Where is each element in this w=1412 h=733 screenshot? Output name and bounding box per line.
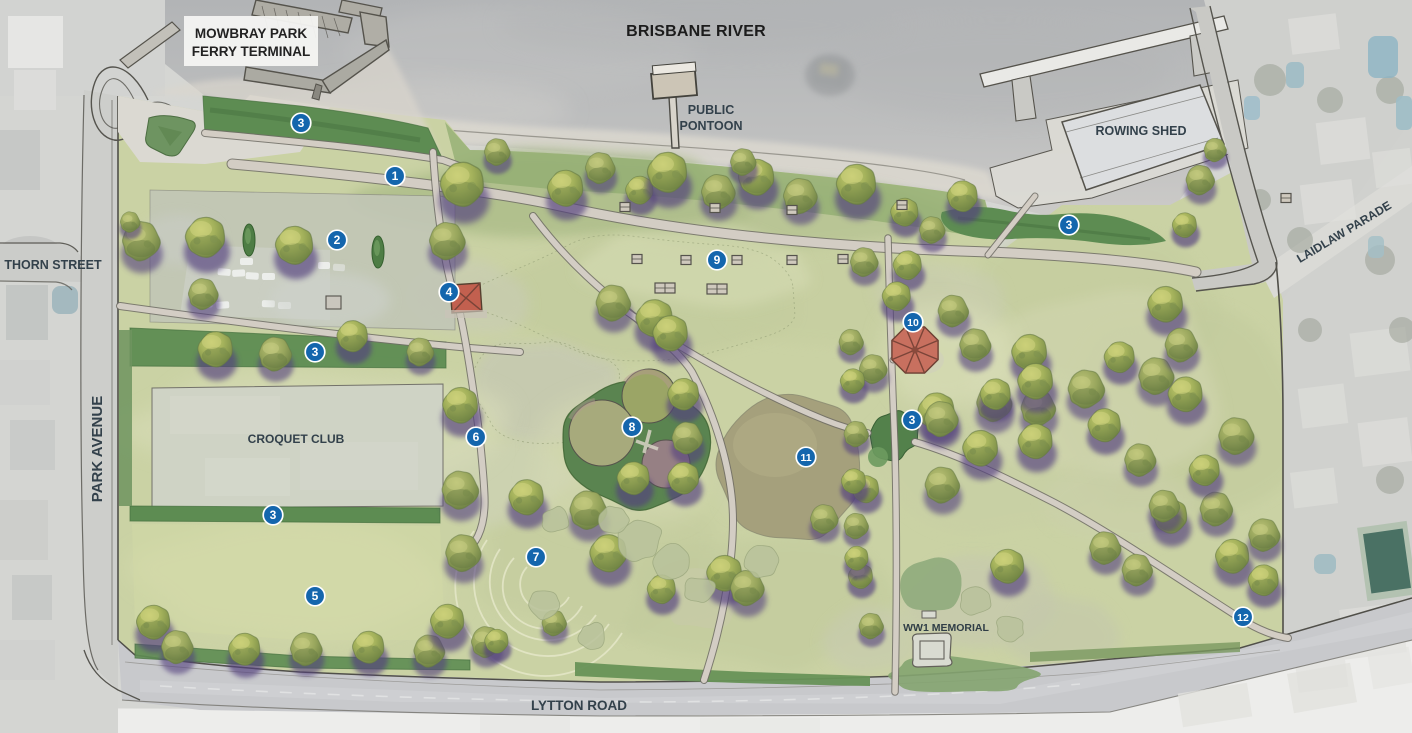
svg-text:8: 8 (629, 420, 636, 434)
svg-text:THORN STREET: THORN STREET (4, 258, 102, 272)
svg-text:10: 10 (907, 317, 919, 329)
svg-text:3: 3 (312, 345, 319, 359)
svg-text:2: 2 (334, 233, 341, 247)
svg-text:4: 4 (446, 285, 453, 299)
svg-text:CROQUET CLUB: CROQUET CLUB (248, 432, 345, 446)
svg-text:1: 1 (392, 169, 399, 183)
svg-text:PUBLIC: PUBLIC (688, 103, 735, 117)
svg-text:7: 7 (533, 550, 540, 564)
svg-text:3: 3 (270, 508, 277, 522)
svg-text:FERRY TERMINAL: FERRY TERMINAL (192, 44, 311, 59)
svg-text:MOWBRAY PARK: MOWBRAY PARK (195, 26, 308, 41)
svg-text:LYTTON ROAD: LYTTON ROAD (531, 698, 627, 713)
svg-text:3: 3 (1066, 218, 1073, 232)
svg-text:WW1 MEMORIAL: WW1 MEMORIAL (903, 622, 989, 634)
svg-text:3: 3 (298, 116, 305, 130)
svg-text:3: 3 (909, 413, 916, 427)
svg-text:PONTOON: PONTOON (680, 119, 743, 133)
svg-text:5: 5 (312, 589, 319, 603)
svg-text:PARK AVENUE: PARK AVENUE (89, 396, 106, 502)
svg-text:BRISBANE RIVER: BRISBANE RIVER (626, 23, 766, 40)
svg-text:ROWING SHED: ROWING SHED (1096, 124, 1187, 138)
svg-text:9: 9 (714, 253, 721, 267)
svg-text:12: 12 (1237, 612, 1249, 624)
svg-text:11: 11 (800, 452, 811, 464)
svg-text:6: 6 (473, 430, 480, 444)
